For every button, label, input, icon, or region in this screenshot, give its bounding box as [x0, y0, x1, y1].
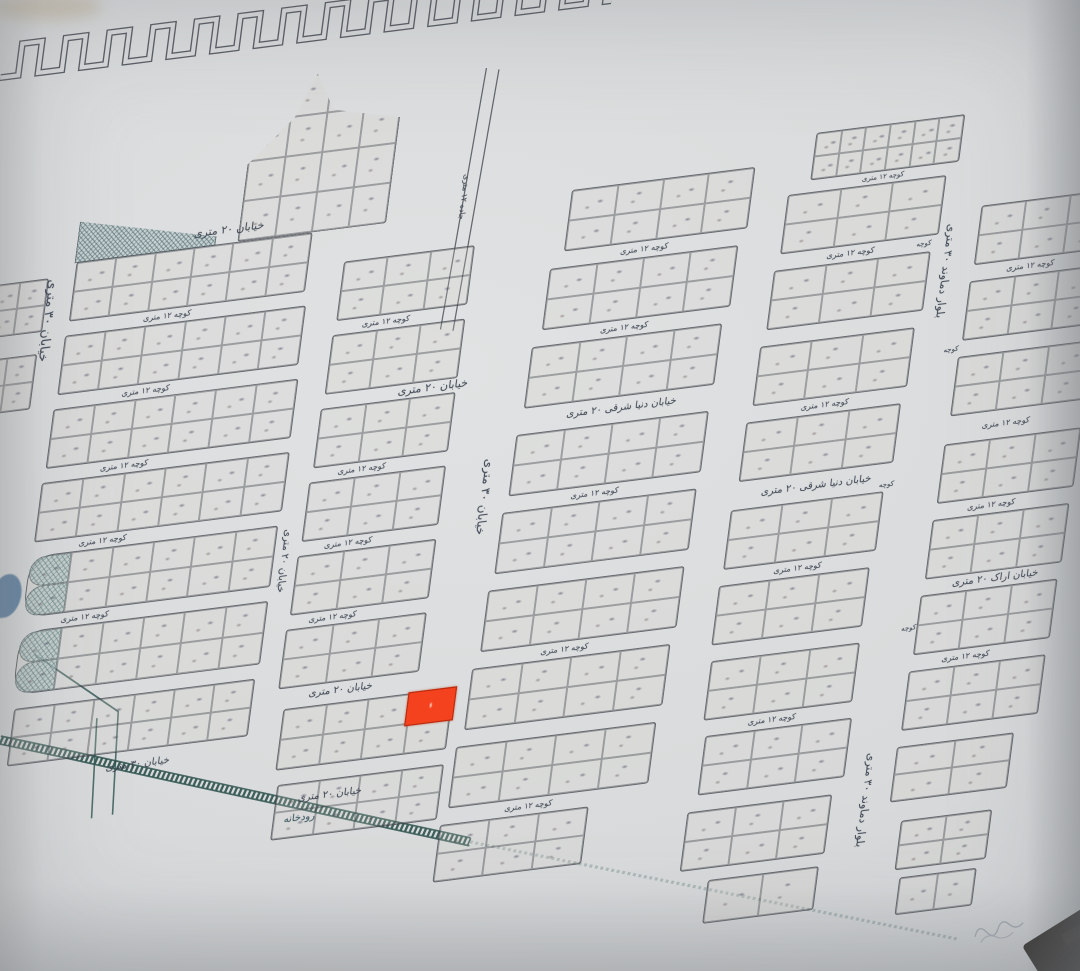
- parcel-cell: [449, 771, 503, 807]
- parcel-cell: [578, 603, 631, 639]
- parcel-cell: [58, 360, 102, 394]
- parcel-cell: [767, 294, 822, 329]
- parcel-cell: [109, 282, 152, 316]
- parcel-cell: [543, 294, 594, 330]
- parcel-cell: [712, 609, 765, 644]
- parcel-cell: [395, 792, 440, 824]
- map-photo: خیابان ۳۰ متریخیابان ۲۰ متریکوچه ۱۲ متری…: [0, 0, 1080, 971]
- parcel-cell: [199, 487, 244, 521]
- parcel-cell: [902, 695, 951, 729]
- parcel-cell: [666, 354, 717, 390]
- parcel-cell: [138, 350, 182, 384]
- parcel-cell: [971, 538, 1020, 572]
- parcel-cell: [525, 372, 576, 408]
- parcel-cell: [762, 603, 815, 638]
- parcel-cell: [938, 468, 987, 502]
- parcel-cell: [855, 357, 910, 392]
- parcel-cell: [372, 642, 422, 677]
- boundary-meander-inner: [0, 0, 615, 78]
- parcel-cell: [871, 281, 926, 316]
- parcel-cell: [317, 148, 359, 192]
- parcel-cell: [781, 218, 837, 253]
- parcel-cell: [207, 708, 250, 741]
- parcel-cell: [349, 183, 391, 227]
- parcel-cell: [98, 355, 142, 389]
- parcel-cell: [836, 150, 863, 176]
- parcel-cell: [699, 760, 751, 795]
- parcel-cell: [187, 562, 232, 597]
- parcel-cell: [934, 138, 961, 164]
- parcel-cell: [548, 759, 602, 795]
- parcel-cell: [598, 753, 652, 789]
- parcel-cell: [47, 434, 91, 468]
- parcel-cell: [896, 874, 938, 914]
- parcel-cell: [178, 345, 222, 379]
- parcel-cell: [557, 454, 609, 490]
- parcel-cell: [947, 690, 996, 724]
- parcel-cell: [303, 507, 352, 541]
- parcel-cell: [218, 340, 262, 374]
- parcel-cell: [358, 427, 406, 461]
- parcel-cell: [1007, 300, 1055, 334]
- parcel-cell: [48, 728, 91, 761]
- parcel-cell: [940, 834, 988, 863]
- parcel-cell: [640, 519, 692, 555]
- parcel-cell: [226, 267, 269, 301]
- parcel-cell: [886, 205, 942, 240]
- parcel-cell: [1004, 608, 1053, 642]
- parcel-cell: [795, 748, 847, 783]
- parcel-cell: [627, 597, 680, 633]
- parcel-cell: [1028, 457, 1077, 491]
- parcel-cell: [619, 360, 670, 396]
- parcel-cell: [740, 446, 795, 481]
- parcel-cell: [514, 687, 567, 723]
- parcel-cell: [791, 439, 846, 474]
- parcel-cell: [983, 463, 1032, 497]
- parcel-cell: [885, 144, 912, 170]
- parcel-cell: [326, 648, 376, 683]
- parcel-cell: [499, 765, 553, 801]
- parcel-cell: [258, 335, 302, 369]
- parcel-cell: [590, 288, 641, 324]
- parcel-cell: [35, 508, 80, 542]
- parcel-cell: [326, 359, 373, 393]
- parcel-cell: [1019, 224, 1067, 258]
- parcel-cell: [563, 681, 616, 717]
- parcel-cell: [249, 408, 293, 442]
- parcel-cell: [423, 275, 470, 309]
- parcel-cell: [565, 215, 614, 250]
- parcel-cell: [312, 802, 357, 834]
- parcel-cell: [775, 527, 829, 562]
- parcel-cell: [704, 685, 757, 720]
- parcel-cell: [951, 381, 1000, 415]
- parcel-cell: [240, 482, 285, 516]
- parcel-cell: [337, 574, 386, 609]
- parcel-cell: [909, 141, 936, 167]
- parcel-cell: [382, 569, 431, 604]
- parcel-cell: [209, 414, 253, 448]
- parcel-cell: [265, 262, 308, 296]
- parcel-cell: [802, 672, 855, 707]
- parcel-cell: [392, 495, 441, 529]
- parcel-cell: [146, 567, 191, 602]
- parcel-cell: [1055, 265, 1080, 299]
- parcel-cell: [1041, 370, 1080, 404]
- highlighted-parcel: [404, 686, 457, 726]
- parcel-cell: [177, 638, 222, 674]
- parcel-cell: [605, 448, 657, 484]
- parcel-cell: [314, 433, 362, 467]
- parcel-cell: [361, 724, 407, 759]
- parcel-cell: [753, 679, 806, 714]
- map-sheet: خیابان ۳۰ متریخیابان ۲۰ متریکوچه ۱۲ متری…: [0, 0, 1080, 971]
- parcel-cell: [403, 422, 451, 456]
- parcel-cell: [136, 643, 181, 679]
- parcel-cell: [276, 735, 322, 770]
- parcel-cell: [87, 723, 130, 756]
- parcel-cell: [896, 840, 944, 869]
- parcel-cell: [380, 280, 427, 314]
- parcel-cell: [1052, 294, 1080, 328]
- parcel-cell: [54, 653, 99, 689]
- parcel-cell: [754, 370, 809, 405]
- parcel-cell: [312, 187, 354, 231]
- parcel-cell: [95, 648, 140, 684]
- parcel-cell: [860, 147, 887, 173]
- parcel-cell: [963, 305, 1011, 339]
- parcel-cell: [228, 556, 273, 591]
- parcel-cell: [636, 282, 687, 318]
- parcel-cell: [656, 203, 705, 238]
- parcel-cell: [275, 192, 317, 236]
- parcel-cell: [337, 286, 384, 320]
- parcel-cell: [127, 718, 170, 751]
- parcel-cell: [758, 867, 818, 916]
- parcel-cell: [148, 277, 191, 311]
- parcel-cell: [543, 531, 595, 567]
- parcel-cell: [592, 525, 644, 561]
- parcel-cell: [509, 460, 561, 496]
- parcel-cell: [158, 492, 203, 526]
- parcel-cell: [804, 364, 859, 399]
- parcel-cell: [8, 733, 51, 766]
- parcel-cell: [465, 693, 518, 729]
- parcel-cell: [812, 597, 865, 632]
- parcel-cell: [354, 143, 396, 187]
- parcel-cell: [64, 577, 109, 612]
- parcel-cell: [87, 429, 131, 463]
- parcel-cell: [495, 537, 547, 573]
- parcel-cell: [0, 382, 32, 412]
- parcel-cell: [610, 209, 659, 244]
- parcel-cell: [701, 198, 750, 233]
- parcel-cell: [681, 836, 732, 871]
- parcel-cell: [117, 497, 162, 531]
- parcel-cell: [128, 424, 172, 458]
- parcel-cell: [319, 729, 365, 764]
- parcel-cell: [992, 684, 1041, 718]
- parcel-cell: [70, 287, 113, 321]
- parcel-cell: [279, 654, 329, 689]
- parcel-cell: [819, 287, 874, 322]
- parcel-cell: [167, 713, 210, 746]
- parcel-cell: [482, 841, 535, 875]
- park-parcel: [23, 582, 68, 617]
- parcel-cell: [683, 276, 734, 312]
- park-parcel: [13, 659, 58, 695]
- parcel-cell: [291, 580, 340, 615]
- parcel-cell: [975, 230, 1023, 264]
- parcel-cell: [347, 501, 396, 535]
- parcel-cell: [218, 633, 263, 669]
- parcel-cell: [703, 874, 763, 923]
- parcel-cell: [776, 824, 827, 859]
- parcel-cell: [996, 375, 1045, 409]
- parcel-cell: [914, 620, 963, 654]
- parcel-cell: [530, 609, 583, 645]
- parcel-cell: [280, 152, 322, 196]
- parcel-cell: [612, 675, 665, 711]
- parcel-cell: [811, 153, 838, 179]
- parcel-cell: [481, 615, 534, 651]
- parcel-cell: [724, 534, 778, 569]
- parcel-cell: [434, 848, 487, 882]
- parcel-cell: [728, 830, 779, 865]
- parcel-cell: [959, 614, 1008, 648]
- parcel-cell: [572, 366, 623, 402]
- parcel-cell: [1045, 341, 1080, 375]
- parcel-cell: [105, 572, 150, 607]
- parcel-cell: [747, 754, 799, 789]
- parcel-cell: [531, 835, 584, 869]
- parcel-cell: [354, 797, 399, 829]
- parcel-cell: [841, 433, 896, 468]
- parcel-cell: [926, 544, 975, 578]
- parcel-cell: [168, 419, 212, 453]
- parcel-cell: [825, 521, 879, 556]
- parcel-cell: [833, 211, 889, 246]
- parcel-cell: [244, 157, 286, 201]
- parcel-cell: [76, 502, 121, 536]
- parcel-cell: [322, 108, 364, 152]
- parcel-cell: [652, 442, 704, 478]
- parcel-cell: [933, 869, 975, 909]
- parcel-cell: [187, 272, 230, 306]
- parcel-cell: [1016, 533, 1065, 567]
